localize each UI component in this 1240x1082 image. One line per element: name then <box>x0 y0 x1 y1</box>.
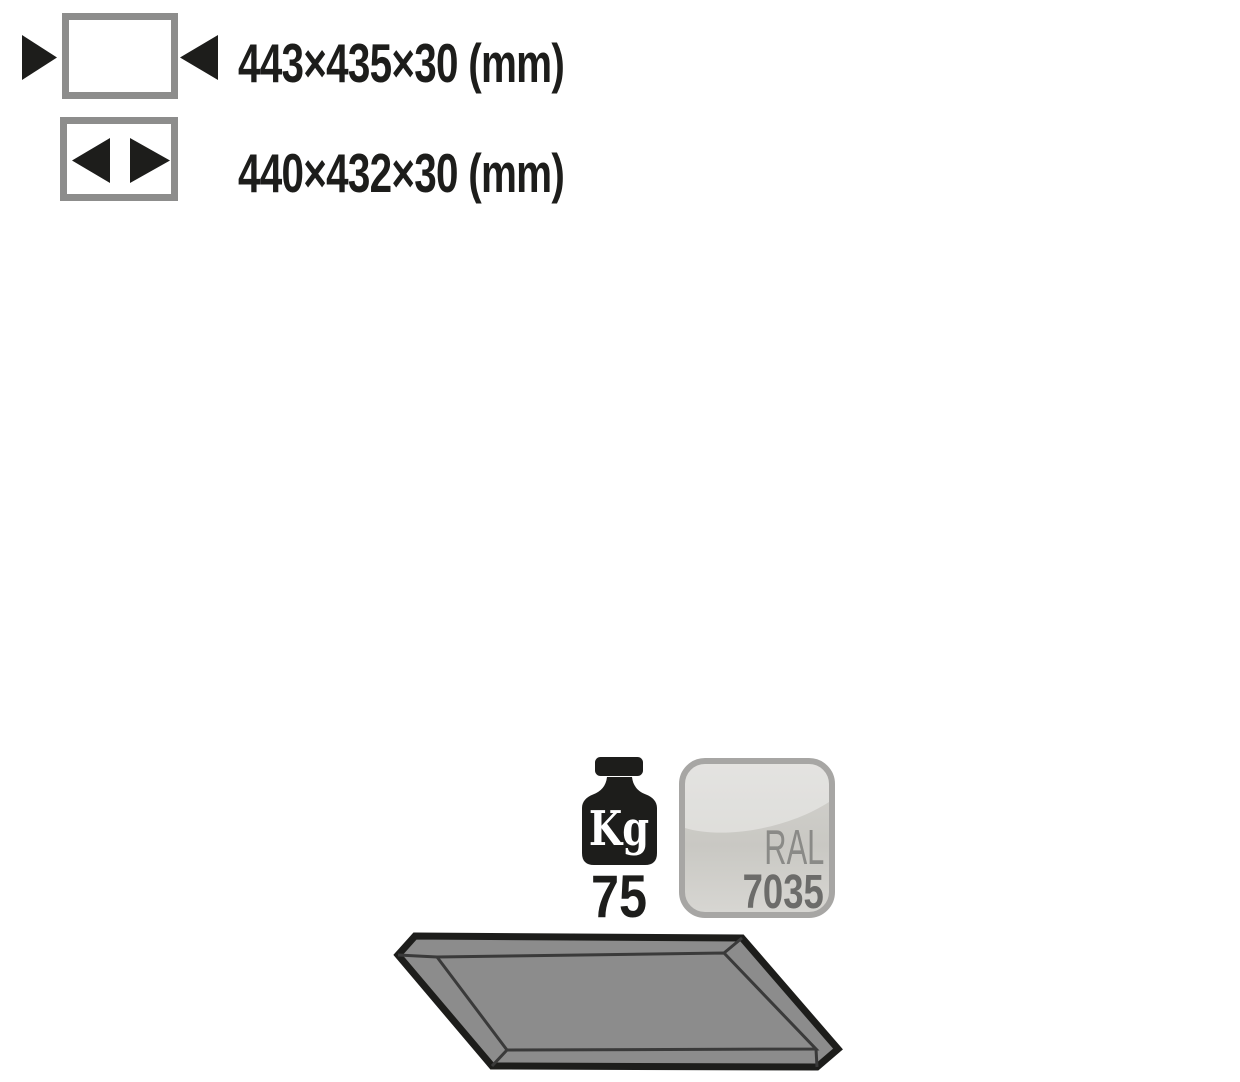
shelf-illustration <box>392 928 844 1076</box>
external-dimensions-value: 443×435×30 (mm) <box>238 36 564 91</box>
weight-value: 75 <box>584 867 655 927</box>
internal-dimensions-value: 440×432×30 (mm) <box>238 146 564 201</box>
external-dimensions-icon <box>22 13 218 99</box>
ral-color-swatch: RAL 7035 <box>679 758 835 918</box>
weight-handle-shape <box>595 757 643 776</box>
arrow-right-icon <box>22 35 57 80</box>
internal-dimensions-icon <box>60 117 178 201</box>
arrow-left-icon <box>180 35 218 80</box>
shelf-rim-edge-left-front <box>398 955 437 957</box>
outer-box-shape <box>66 17 175 96</box>
ral-code-value: 7035 <box>743 869 824 917</box>
weight-unit-label: Kg <box>585 805 652 853</box>
product-spec-sheet: { "product_spec": { "dimensions": [ { "n… <box>0 0 1240 1082</box>
shelf-rim-edge-bottom-right <box>816 1049 817 1067</box>
load-capacity: Kg 75 <box>577 755 661 925</box>
